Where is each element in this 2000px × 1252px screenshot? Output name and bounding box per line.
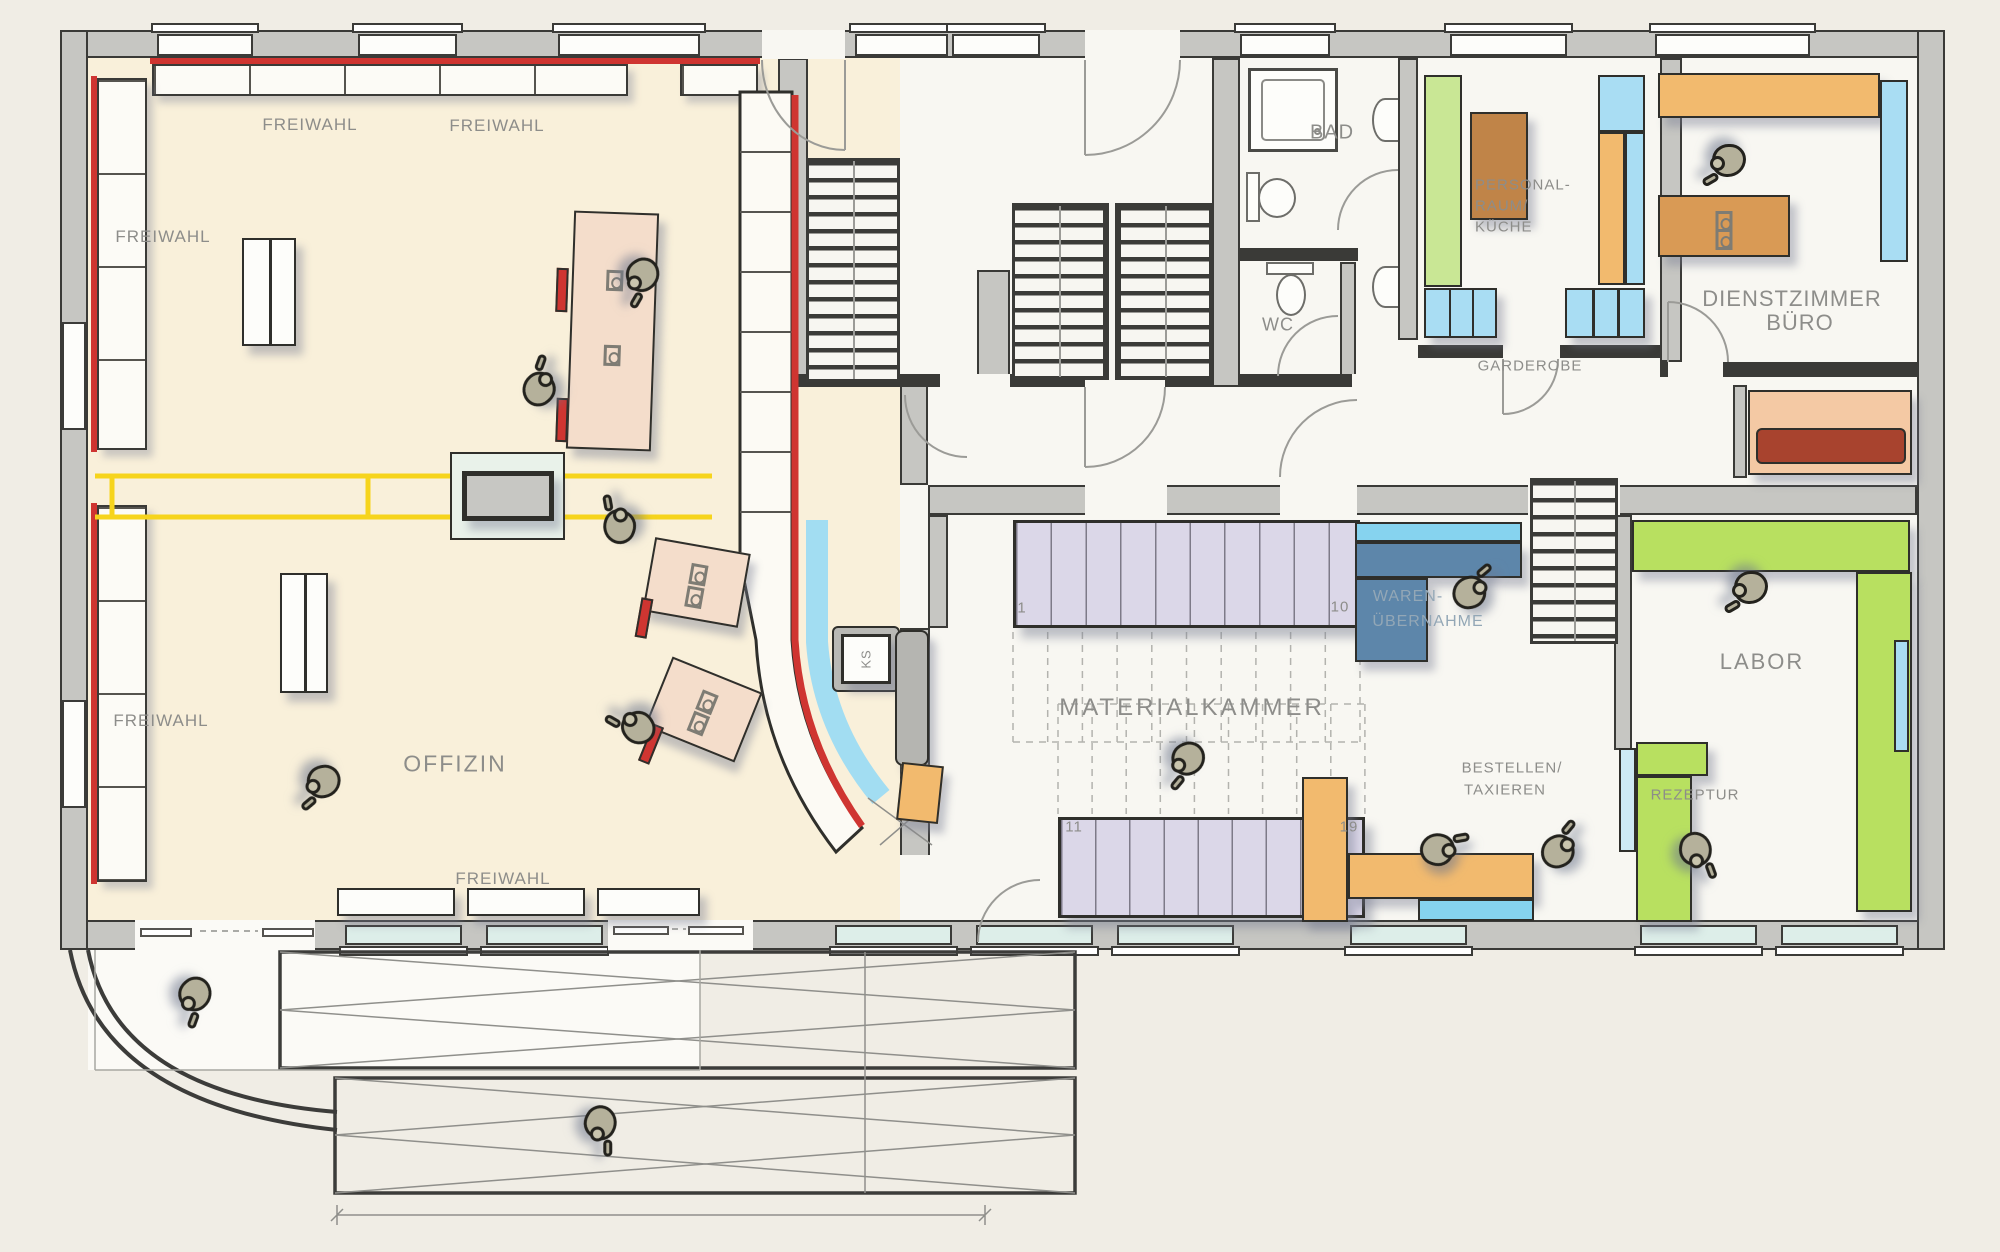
freiwahl-shelf-bottom xyxy=(467,888,585,916)
plan-label: RAUM/ xyxy=(1475,198,1528,215)
kueche-cab-orange xyxy=(1598,132,1625,285)
person-head xyxy=(1710,156,1725,171)
stair-straight xyxy=(806,158,900,382)
canopy-braces-1 xyxy=(280,952,1075,1068)
plan-label: BÜRO xyxy=(1766,310,1834,336)
rezeptur-bench-top xyxy=(1636,742,1708,776)
stair-back-centerline xyxy=(1574,481,1576,641)
washbasin xyxy=(1372,98,1398,142)
plan-label: 10 xyxy=(1331,599,1350,616)
plan-label: 19 xyxy=(1340,819,1359,836)
bestellen-counter-v xyxy=(1302,777,1348,922)
cash-register-icon xyxy=(684,585,704,609)
handover-red-2 xyxy=(555,398,569,442)
plan-label: KÜCHE xyxy=(1475,219,1533,236)
plan-label: MATERIALKAMMER xyxy=(1059,694,1325,722)
plan-label: FREIWAHL xyxy=(449,116,544,136)
plan-label: FREIWAHL xyxy=(262,115,357,135)
plan-label: 1 xyxy=(1017,600,1026,617)
gondola-core xyxy=(462,471,554,521)
garderobe-lockers-left xyxy=(1424,288,1497,338)
canopy-frame-2 xyxy=(335,1078,1075,1193)
stair-u-left-centerline xyxy=(1059,206,1061,377)
person-arm xyxy=(602,494,614,512)
door-arc-hall-2 xyxy=(1280,400,1357,477)
freiwahl-shelf-bottom xyxy=(337,888,455,916)
kueche-cab-blue-2 xyxy=(1625,132,1645,285)
door-arc-entry-2 xyxy=(1085,60,1180,155)
plan-label: WAREN- xyxy=(1373,588,1443,606)
picking-bay-dashes xyxy=(1013,632,1360,742)
plan-label: REZEPTUR xyxy=(1651,787,1740,804)
door-arc-hall-1 xyxy=(1085,387,1165,467)
couch-cushion xyxy=(1756,428,1906,464)
plan-label: LABOR xyxy=(1720,649,1805,675)
labor-bench-top xyxy=(1632,520,1910,572)
materialkammer-shelf-1-10 xyxy=(1013,520,1360,628)
stair-u-right xyxy=(1118,203,1212,380)
canopy-frame-1 xyxy=(280,952,1075,1068)
cash-register-icon xyxy=(688,563,708,587)
freiwahl-shelf-bottom xyxy=(597,888,700,916)
shelf-free-1 xyxy=(242,238,296,346)
stair-landing-gap xyxy=(1106,203,1118,380)
plan-label: KS xyxy=(859,649,874,668)
door-arc-offizin xyxy=(905,395,967,457)
plan-label: BESTELLEN/ xyxy=(1462,760,1563,777)
person-figure xyxy=(291,756,344,809)
rezeptur-cab-blue xyxy=(1619,748,1636,852)
person-figure xyxy=(1448,564,1501,617)
plan-label: OFFIZIN xyxy=(403,751,506,778)
person-figure xyxy=(1700,138,1746,184)
plan-label: WC xyxy=(1262,315,1294,336)
person-arm xyxy=(1452,832,1470,844)
plan-label: 11 xyxy=(1065,819,1083,836)
plan-label: GARDEROBE xyxy=(1478,358,1583,375)
pharmacy-floor-plan: FREIWAHLFREIWAHLFREIWAHLFREIWAHLFREIWAHL… xyxy=(0,0,2000,1252)
dimension-line xyxy=(331,1205,991,1225)
kueche-cab-green xyxy=(1424,75,1462,287)
person-figure xyxy=(1722,565,1768,611)
door-arc-materialkammer xyxy=(978,880,1040,942)
stair-straight-centerline xyxy=(853,161,855,379)
shelf-free-2 xyxy=(280,573,328,693)
stair-u-right-centerline xyxy=(1165,206,1167,377)
door-arc-bad xyxy=(1338,170,1398,230)
garderobe-lockers-right xyxy=(1565,288,1645,338)
cash-register-icon xyxy=(1716,229,1733,250)
bestellen-cab-blue xyxy=(1418,899,1534,921)
washbasin xyxy=(1372,266,1398,308)
cash-register-icon xyxy=(686,710,710,736)
stair-back xyxy=(1530,478,1618,644)
waren-counter-glass xyxy=(1355,522,1522,542)
toilet-bowl xyxy=(1276,274,1306,316)
plan-label: FREIWAHL xyxy=(115,227,210,247)
slidingdoor-dash xyxy=(200,929,686,931)
waren-counter-1 xyxy=(1355,542,1522,578)
person-figure xyxy=(1668,828,1721,881)
vestibule-glass-inner xyxy=(88,950,337,1112)
plan-label: DIENSTZIMMER xyxy=(1702,286,1881,312)
toilet-bowl xyxy=(1258,178,1296,218)
plan-label: BAD xyxy=(1310,122,1354,145)
canopy-braces-2 xyxy=(335,1078,1075,1193)
storage-orange xyxy=(896,762,944,824)
person-arm xyxy=(1704,861,1718,880)
storage-gray xyxy=(895,630,929,766)
stair-u-left xyxy=(1012,203,1106,380)
kueche-cab-blue-1 xyxy=(1598,75,1645,132)
buero-counter-top xyxy=(1658,73,1880,118)
handover-red-1 xyxy=(555,268,569,312)
labor-cab-blue xyxy=(1894,640,1909,752)
person-arm xyxy=(603,1140,612,1157)
person-head xyxy=(1732,583,1747,598)
plan-label: TAXIEREN xyxy=(1464,782,1546,799)
plan-label: FREIWAHL xyxy=(113,711,208,731)
plan-label: PERSONAL- xyxy=(1475,177,1571,194)
cash-register-icon xyxy=(603,345,621,367)
plan-label: ÜBERNAHME xyxy=(1372,613,1483,631)
buero-cab-blue xyxy=(1880,80,1908,262)
buero-desk xyxy=(1658,195,1790,257)
plan-label: FREIWAHL xyxy=(455,869,550,889)
